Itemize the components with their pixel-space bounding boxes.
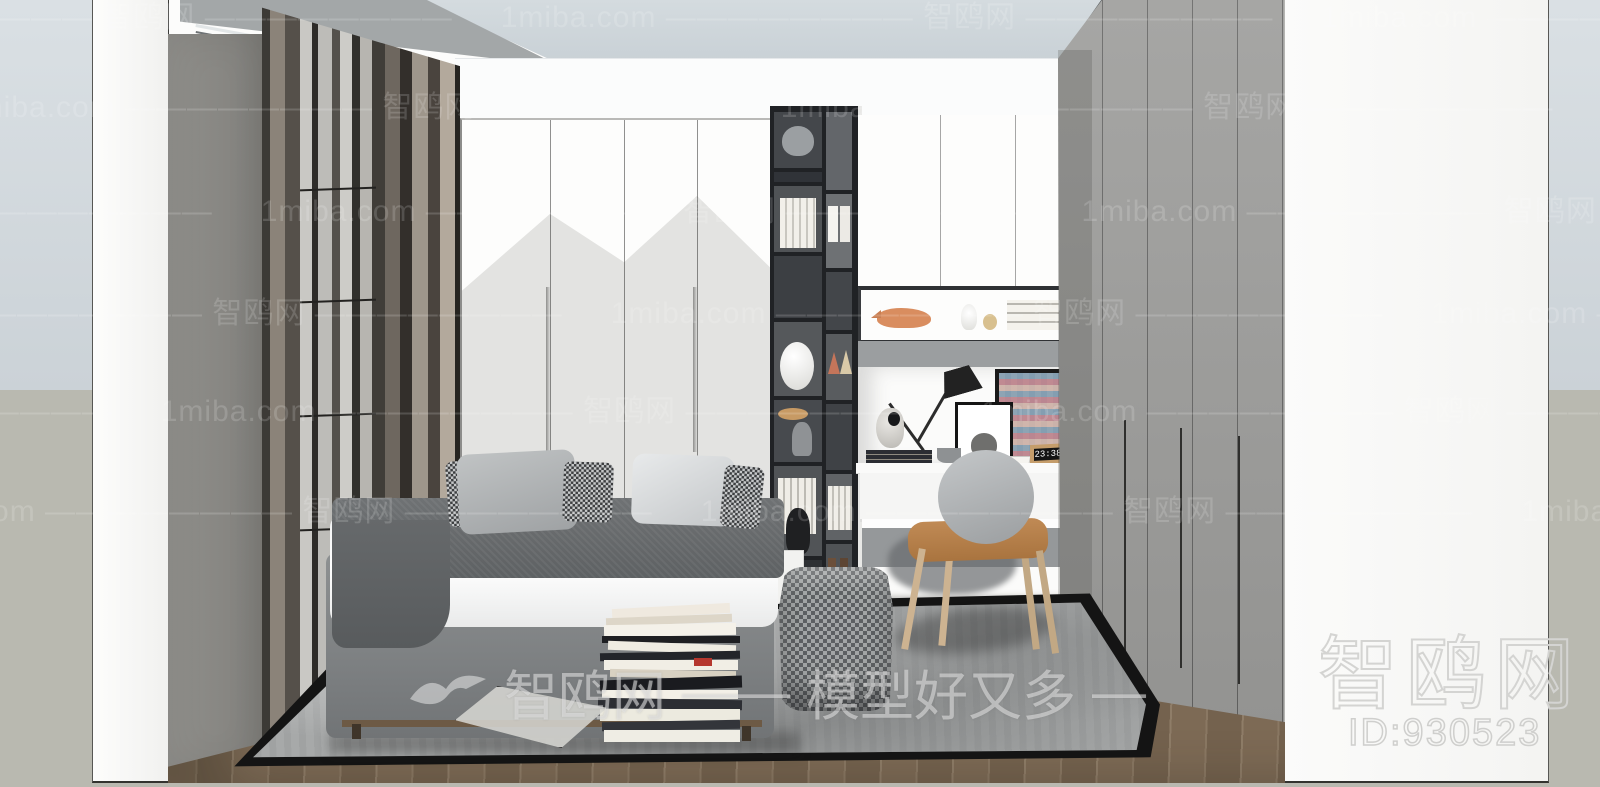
shelf-cell bbox=[774, 172, 822, 182]
bedroom-3d-render: 23:38 bbox=[0, 0, 1600, 787]
left-gray-wall bbox=[168, 34, 262, 768]
pillow-checkered bbox=[719, 464, 765, 530]
white-box-decor bbox=[828, 206, 838, 242]
pillow-checkered bbox=[562, 461, 614, 523]
books-decor bbox=[780, 198, 816, 248]
outer-wall-right bbox=[1284, 0, 1548, 781]
shelf-cell bbox=[826, 272, 852, 330]
rhino-horn bbox=[871, 310, 881, 318]
pillow-gray bbox=[456, 449, 578, 535]
chair-backrest bbox=[938, 450, 1034, 544]
outer-wall-left bbox=[93, 0, 169, 781]
book bbox=[604, 730, 740, 742]
niche-gray-band bbox=[858, 341, 1075, 367]
book-stack bbox=[598, 606, 748, 748]
upper-cabinets bbox=[858, 115, 1078, 290]
book bbox=[604, 623, 736, 637]
right-wardrobe-handle bbox=[1238, 436, 1240, 684]
pouf bbox=[779, 567, 893, 711]
soffit-band bbox=[455, 58, 1070, 121]
right-wardrobe-handle bbox=[1124, 420, 1126, 655]
book-red-label bbox=[694, 658, 712, 666]
shelf-cell bbox=[774, 256, 822, 318]
penguin-figurine bbox=[961, 304, 977, 330]
figurine-decor bbox=[792, 422, 812, 456]
parrot-face bbox=[888, 412, 900, 426]
right-wardrobe-handle bbox=[1180, 428, 1182, 668]
bed-leg bbox=[352, 724, 361, 739]
owl-figurine bbox=[983, 314, 997, 330]
display-shelf bbox=[858, 286, 1081, 345]
shelf-cell bbox=[826, 404, 852, 470]
egg-sculpture-decor bbox=[780, 342, 814, 390]
wardrobe-door-handle bbox=[546, 287, 550, 452]
bed-throw-drape bbox=[332, 520, 450, 648]
mushroom-decor bbox=[778, 408, 808, 420]
vase-decor bbox=[782, 126, 814, 156]
books-under-figurine bbox=[866, 450, 932, 464]
rhino-figurine bbox=[877, 308, 931, 328]
wardrobe-door-handle bbox=[693, 287, 697, 452]
shelf-cell bbox=[826, 112, 852, 190]
white-box-decor bbox=[840, 206, 850, 242]
books-decor bbox=[828, 486, 852, 530]
bear-figure-decor bbox=[786, 508, 810, 554]
